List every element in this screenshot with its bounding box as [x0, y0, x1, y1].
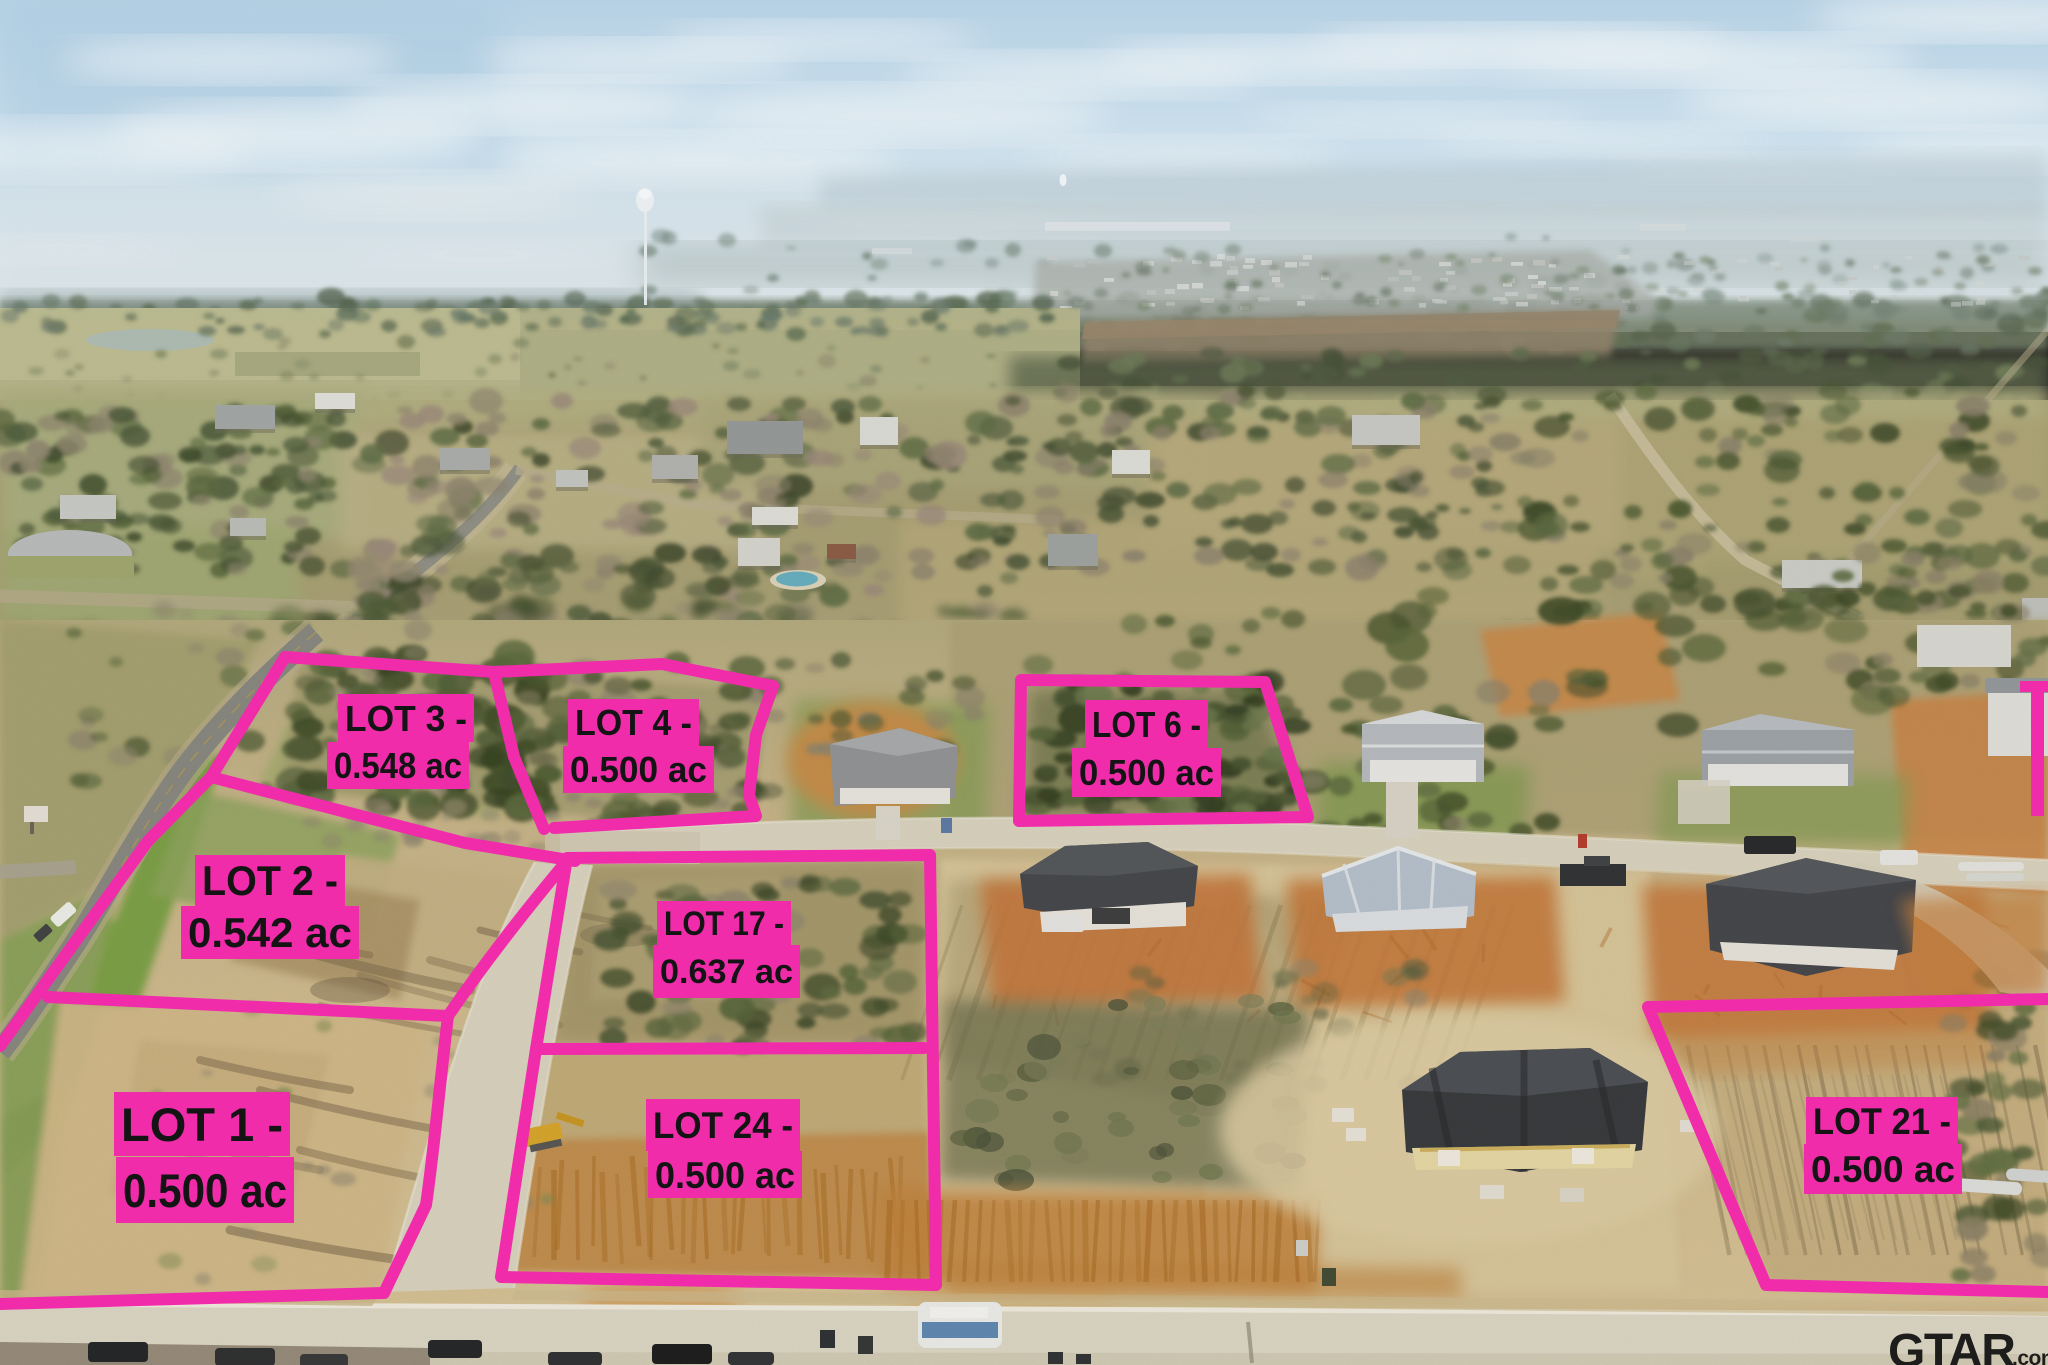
- svg-text:LOT 6 -: LOT 6 -: [1092, 704, 1201, 745]
- svg-text:LOT 17 -: LOT 17 -: [664, 905, 784, 943]
- svg-text:0.542 ac: 0.542 ac: [188, 909, 352, 956]
- svg-text:0.500 ac: 0.500 ac: [655, 1155, 795, 1196]
- svg-text:0.500 ac: 0.500 ac: [1811, 1149, 1955, 1190]
- svg-text:GTAR: GTAR: [1888, 1325, 2015, 1365]
- svg-text:LOT 4 -: LOT 4 -: [575, 702, 692, 743]
- svg-text:0.500 ac: 0.500 ac: [123, 1164, 287, 1217]
- svg-text:LOT 3 -: LOT 3 -: [345, 698, 467, 739]
- svg-text:LOT 2 -: LOT 2 -: [202, 857, 338, 904]
- svg-text:0.548 ac: 0.548 ac: [334, 745, 462, 786]
- svg-text:0.637 ac: 0.637 ac: [660, 953, 793, 991]
- svg-text:LOT 1 -: LOT 1 -: [121, 1098, 283, 1151]
- svg-text:.com: .com: [2012, 1347, 2048, 1365]
- svg-text:LOT 21 -: LOT 21 -: [1813, 1101, 1951, 1142]
- svg-text:0.500 ac: 0.500 ac: [1079, 752, 1214, 793]
- svg-text:0.500 ac: 0.500 ac: [570, 749, 707, 790]
- svg-text:LOT 24 -: LOT 24 -: [653, 1105, 793, 1146]
